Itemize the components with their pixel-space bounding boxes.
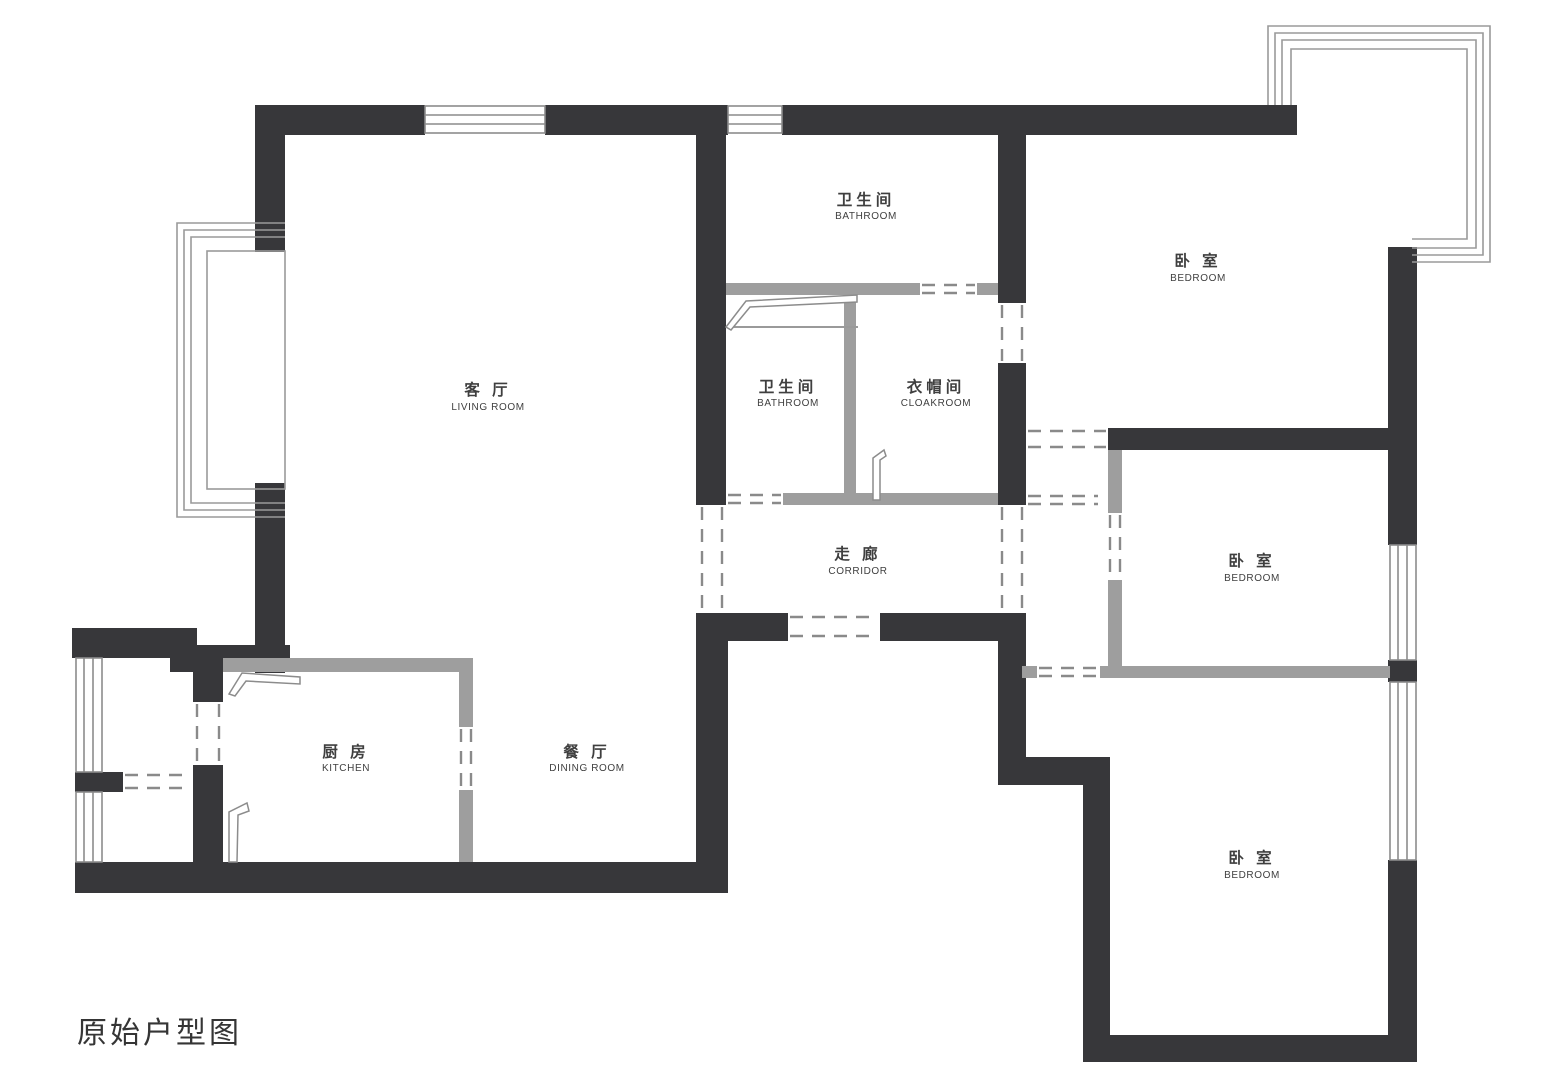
room-label-bathroom-middle: 卫生间 BATHROOM	[757, 377, 819, 409]
bay-window-top-right	[1268, 26, 1490, 262]
door-leaf-kitchen-top	[229, 673, 300, 696]
door-leaf-bathroom-middle-sliding	[726, 295, 858, 330]
opening-corridor-dining	[790, 617, 878, 636]
bedroom-middle-right-label-en: BEDROOM	[1224, 573, 1280, 584]
walls-structural	[72, 105, 1417, 1062]
door-leaf-kitchen-bottom	[229, 803, 249, 862]
opening-kitchen-entry	[197, 704, 219, 763]
corridor-label-cn: 走 廊	[833, 544, 881, 563]
window-bedroom-middle	[1390, 545, 1416, 660]
bedroom-bottom-right-label-en: BEDROOM	[1224, 870, 1280, 881]
bathroom-middle-label-cn: 卫生间	[759, 377, 818, 396]
floor-plan: 客 厅 LIVING ROOM 卫生间 BATHROOM 卫生间 BATHROO…	[0, 0, 1553, 1087]
room-label-kitchen: 厨 房 KITCHEN	[322, 742, 370, 774]
opening-entry-door	[125, 775, 191, 788]
dining-room-label-cn: 餐 厅	[562, 742, 610, 761]
bedroom-middle-right-label-cn: 卧 室	[1228, 551, 1275, 570]
opening-living-corridor	[702, 507, 722, 611]
window-top-bathroom	[728, 106, 782, 133]
bathroom-top-label-en: BATHROOM	[835, 211, 897, 222]
bedroom-top-right-label-en: BEDROOM	[1170, 273, 1226, 284]
bathroom-top-label-cn: 卫生间	[837, 190, 896, 209]
bathroom-middle-label-en: BATHROOM	[757, 398, 819, 409]
opening-bedroom-bottom-right-door	[1039, 668, 1098, 676]
opening-bedroom-middle-right-door	[1110, 515, 1120, 578]
window-top-living	[425, 106, 545, 133]
dining-room-label-en: DINING ROOM	[549, 763, 625, 774]
opening-bedroom-top-right-door	[1028, 431, 1106, 447]
opening-cloakroom-bedroom	[1002, 305, 1022, 361]
room-label-corridor: 走 廊 CORRIDOR	[828, 544, 887, 577]
opening-kitchen-dining	[461, 729, 471, 788]
room-label-bedroom-middle-right: 卧 室 BEDROOM	[1224, 551, 1280, 584]
opening-hall-north	[1028, 496, 1098, 504]
room-label-living-room: 客 厅 LIVING ROOM	[451, 380, 524, 413]
living-room-label-cn: 客 厅	[464, 380, 511, 399]
window-bedroom-bottom	[1390, 682, 1416, 860]
room-label-bedroom-bottom-right: 卧 室 BEDROOM	[1224, 848, 1280, 881]
door-leaf-cloakroom	[873, 450, 886, 500]
plan-title: 原始户型图	[77, 1017, 242, 1050]
cloakroom-label-cn: 衣帽间	[907, 377, 966, 396]
kitchen-label-cn: 厨 房	[322, 742, 369, 761]
floor-plan-drawing: 客 厅 LIVING ROOM 卫生间 BATHROOM 卫生间 BATHROO…	[0, 0, 1553, 1087]
walls-partition	[223, 283, 1390, 862]
room-label-bathroom-top: 卫生间 BATHROOM	[835, 190, 897, 222]
window-entry-lower	[76, 792, 102, 862]
room-label-cloakroom: 衣帽间 CLOAKROOM	[901, 377, 971, 409]
window-entry-upper	[76, 658, 102, 772]
bedroom-bottom-right-label-cn: 卧 室	[1228, 848, 1275, 867]
bay-window-left	[177, 223, 285, 517]
corridor-label-en: CORRIDOR	[828, 566, 887, 577]
living-room-label-en: LIVING ROOM	[451, 402, 524, 413]
opening-bathroom-middle-door	[728, 495, 781, 503]
room-label-bedroom-top-right: 卧 室 BEDROOM	[1170, 251, 1226, 284]
kitchen-label-en: KITCHEN	[322, 763, 370, 774]
opening-corridor-hall	[1002, 507, 1022, 611]
cloakroom-label-en: CLOAKROOM	[901, 398, 971, 409]
bedroom-top-right-label-cn: 卧 室	[1174, 251, 1221, 270]
room-label-dining-room: 餐 厅 DINING ROOM	[549, 742, 625, 774]
opening-bathroom-top-door	[922, 285, 975, 293]
